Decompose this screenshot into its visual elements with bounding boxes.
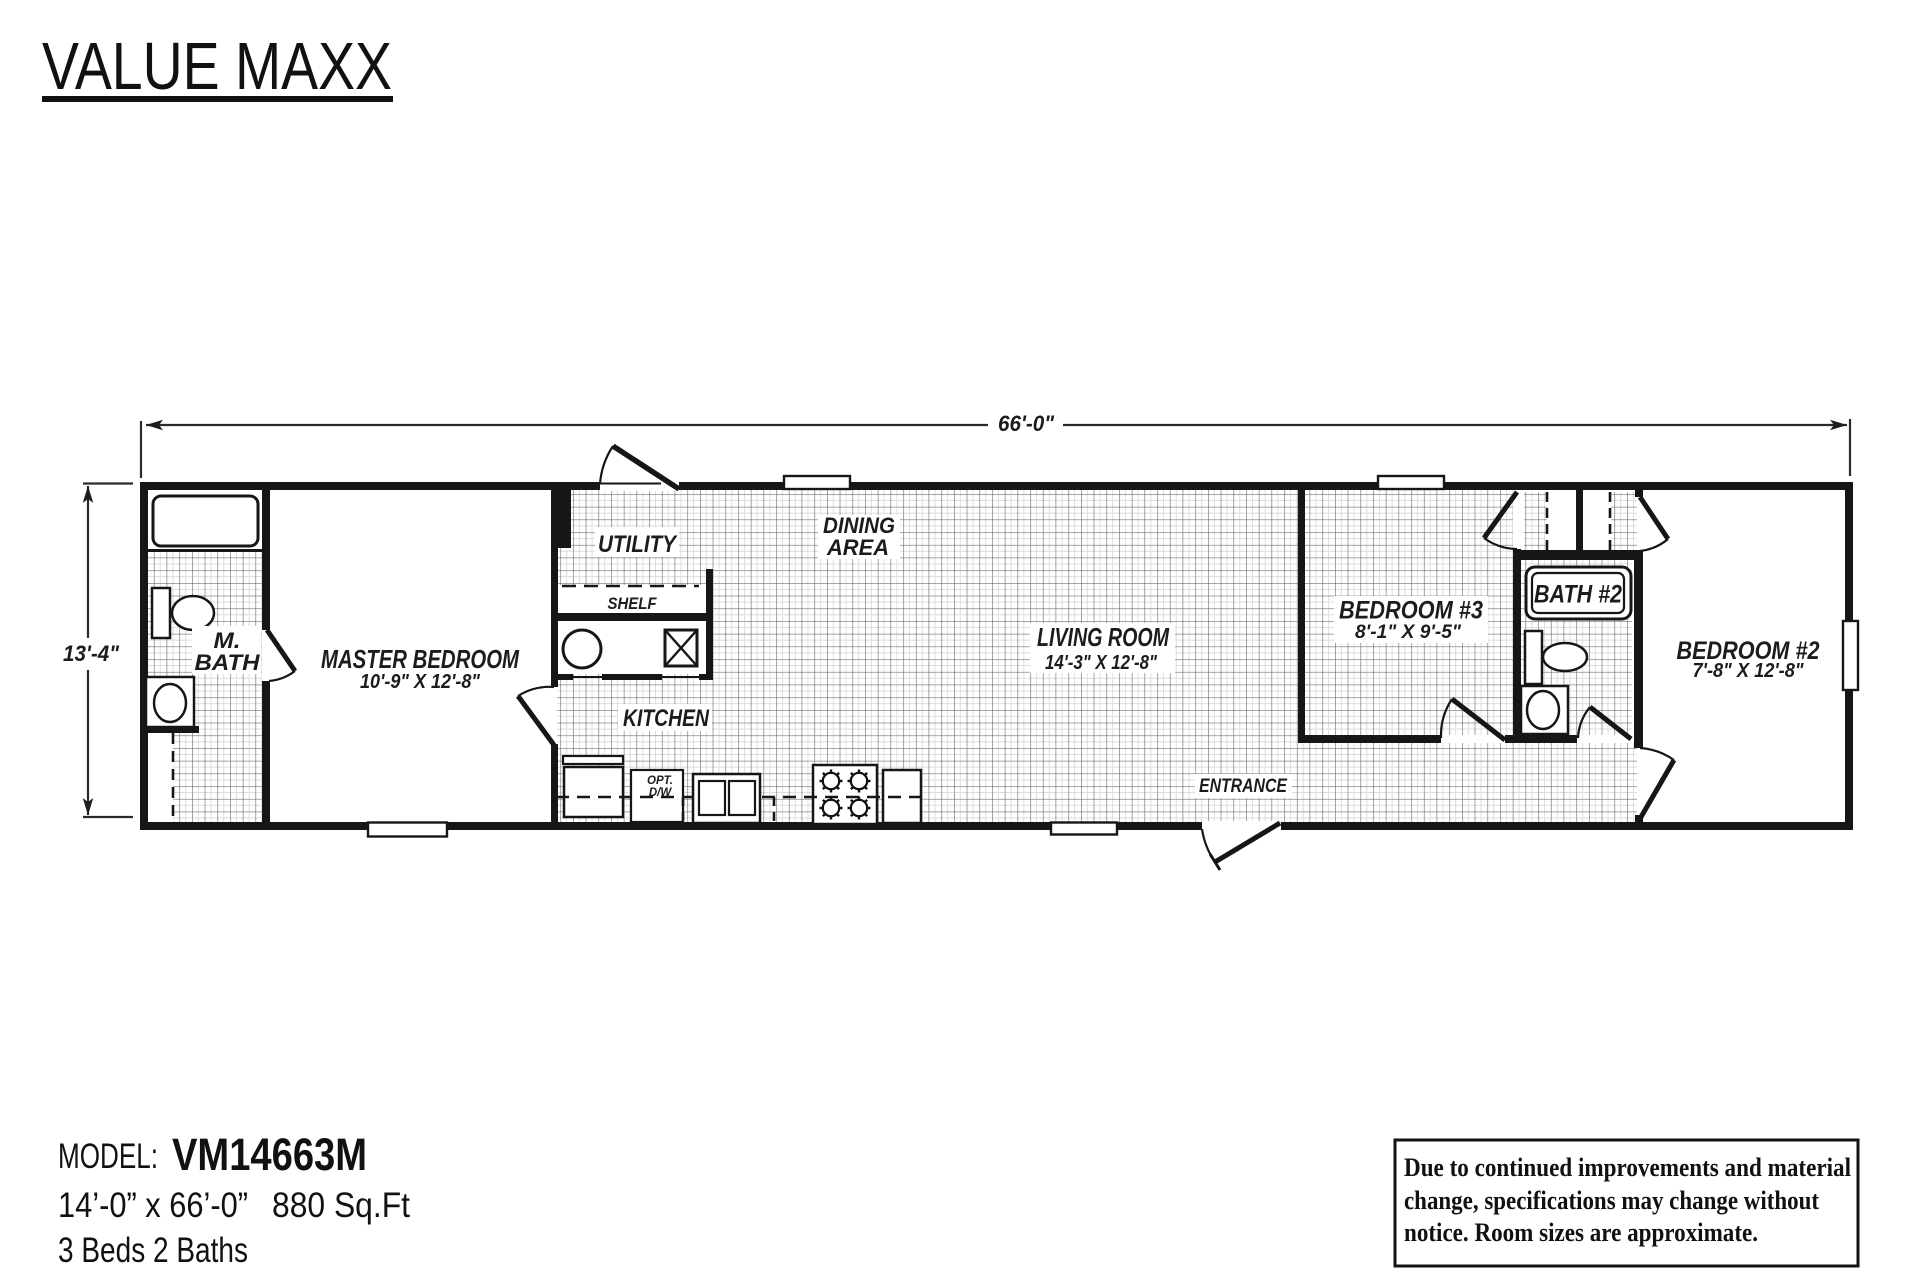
svg-text:14’-0” x 66’-0”: 14’-0” x 66’-0” <box>58 1186 248 1225</box>
svg-text:BATH #2: BATH #2 <box>1534 581 1622 609</box>
svg-text:VM14663M: VM14663M <box>172 1129 367 1180</box>
svg-text:66'-0": 66'-0" <box>998 411 1055 436</box>
svg-text:3 Beds 2 Baths: 3 Beds 2 Baths <box>58 1231 248 1270</box>
svg-text:MASTER BEDROOM: MASTER BEDROOM <box>321 644 520 674</box>
svg-text:VALUE MAXX: VALUE MAXX <box>42 29 392 104</box>
svg-text:SHELF: SHELF <box>608 594 658 613</box>
svg-text:LIVING ROOM: LIVING ROOM <box>1037 622 1170 652</box>
svg-text:10'-9" X 12'-8": 10'-9" X 12'-8" <box>360 671 480 693</box>
svg-text:BEDROOM #3: BEDROOM #3 <box>1339 597 1483 625</box>
svg-text:AREA: AREA <box>826 535 889 560</box>
svg-text:ENTRANCE: ENTRANCE <box>1199 776 1288 797</box>
svg-text:8'-1" X 9'-5": 8'-1" X 9'-5" <box>1355 622 1462 643</box>
svg-text:MODEL:: MODEL: <box>58 1137 158 1176</box>
svg-text:7'-8" X 12'-8": 7'-8" X 12'-8" <box>1693 660 1804 682</box>
svg-text:D/W: D/W <box>649 787 673 799</box>
svg-text:KITCHEN: KITCHEN <box>623 705 710 732</box>
svg-text:14'-3" X 12'-8": 14'-3" X 12'-8" <box>1045 652 1157 674</box>
svg-text:change, specifications may cha: change, specifications may change withou… <box>1404 1186 1819 1215</box>
svg-text:13'-4": 13'-4" <box>63 641 120 666</box>
svg-text:Due to continued improvements: Due to continued improvements and materi… <box>1404 1153 1851 1182</box>
svg-text:OPT.: OPT. <box>647 775 673 787</box>
svg-text:BATH: BATH <box>195 650 261 675</box>
svg-text:880 Sq.Ft: 880 Sq.Ft <box>272 1186 410 1225</box>
svg-text:UTILITY: UTILITY <box>598 531 678 558</box>
svg-text:notice. Room sizes are approxi: notice. Room sizes are approximate. <box>1404 1218 1758 1247</box>
